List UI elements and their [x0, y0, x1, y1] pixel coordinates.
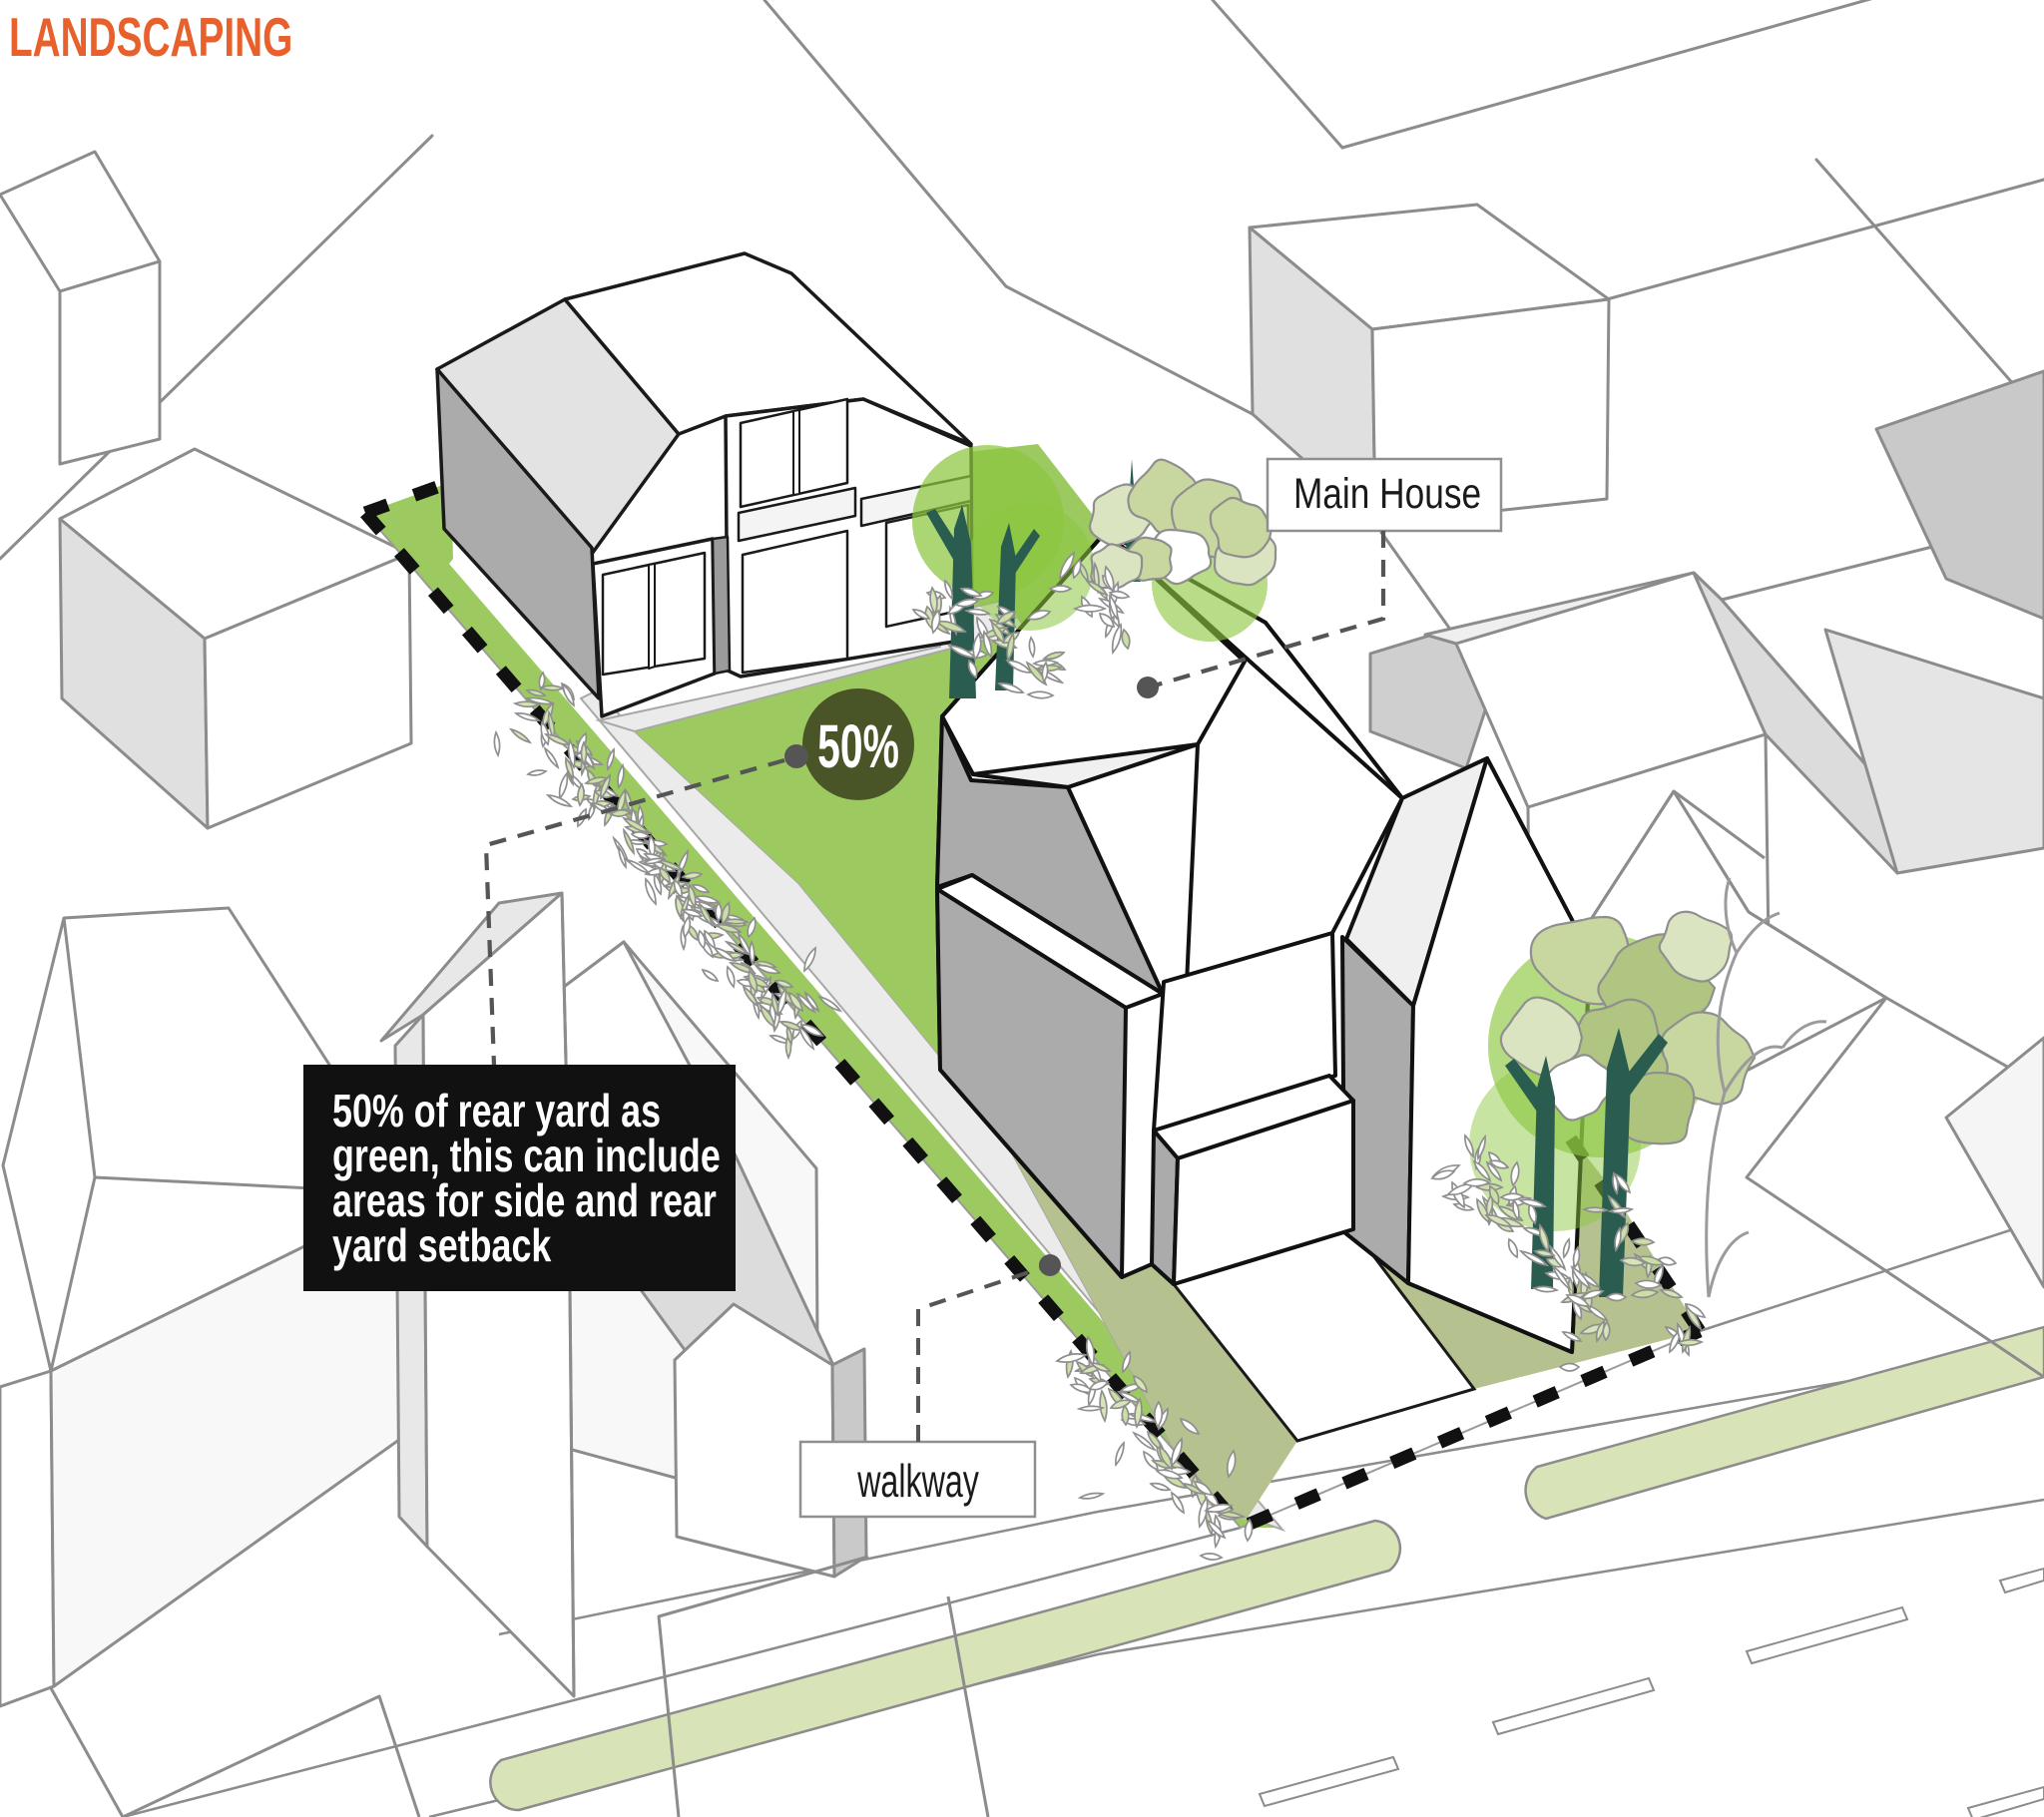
svg-text:areas for side and rear: areas for side and rear: [332, 1175, 717, 1226]
svg-text:walkway: walkway: [856, 1456, 979, 1507]
svg-text:LANDSCAPING: LANDSCAPING: [9, 7, 292, 68]
svg-text:50%: 50%: [817, 713, 899, 781]
svg-text:yard setback: yard setback: [332, 1220, 551, 1271]
svg-text:50% of rear yard as: 50% of rear yard as: [332, 1086, 661, 1136]
svg-text:green, this can include: green, this can include: [332, 1131, 721, 1181]
svg-text:Main House: Main House: [1293, 470, 1481, 518]
